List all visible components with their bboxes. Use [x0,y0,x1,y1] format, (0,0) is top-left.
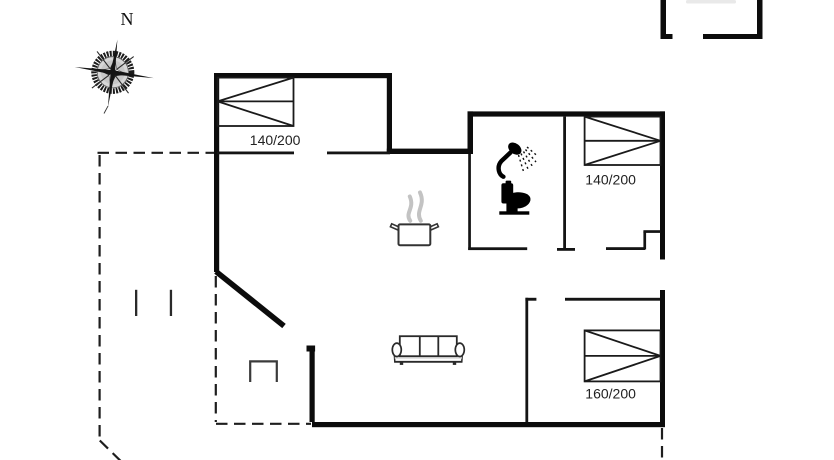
svg-text:140/200: 140/200 [585,171,636,187]
svg-text:140/200: 140/200 [250,132,301,148]
svg-text:160/200: 160/200 [585,385,636,401]
svg-text:N: N [121,9,134,29]
